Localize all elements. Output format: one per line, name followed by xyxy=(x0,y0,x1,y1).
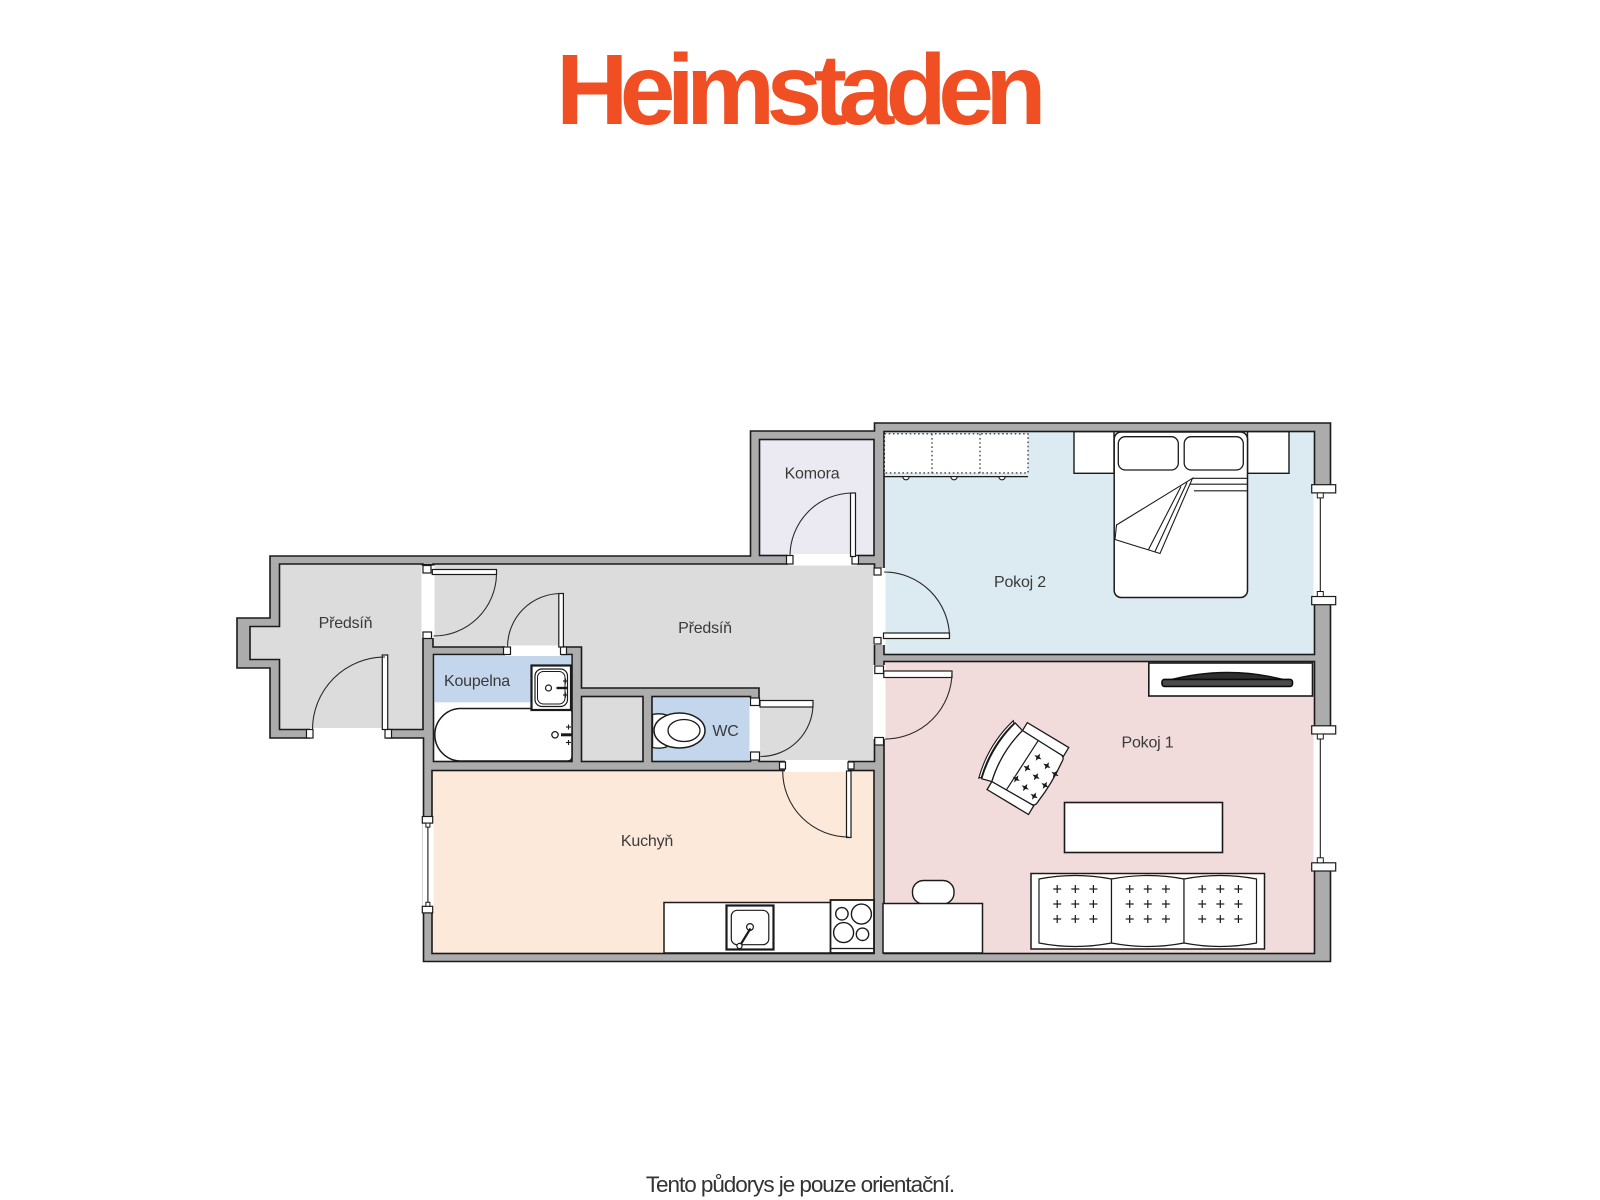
svg-text:Koupelna: Koupelna xyxy=(444,673,510,690)
svg-text:Pokoj 2: Pokoj 2 xyxy=(994,574,1046,591)
svg-text:Kuchyň: Kuchyň xyxy=(621,833,673,850)
svg-text:Heimstaden: Heimstaden xyxy=(556,34,1040,146)
svg-text:Předsíň: Předsíň xyxy=(319,615,373,632)
svg-text:Pokoj 1: Pokoj 1 xyxy=(1122,735,1174,752)
svg-text:Tento půdorys je pouze orienta: Tento půdorys je pouze orientační. xyxy=(646,1172,954,1197)
svg-text:Předsíň: Předsíň xyxy=(678,620,732,637)
svg-text:Komora: Komora xyxy=(785,466,840,483)
svg-text:WC: WC xyxy=(712,723,738,740)
